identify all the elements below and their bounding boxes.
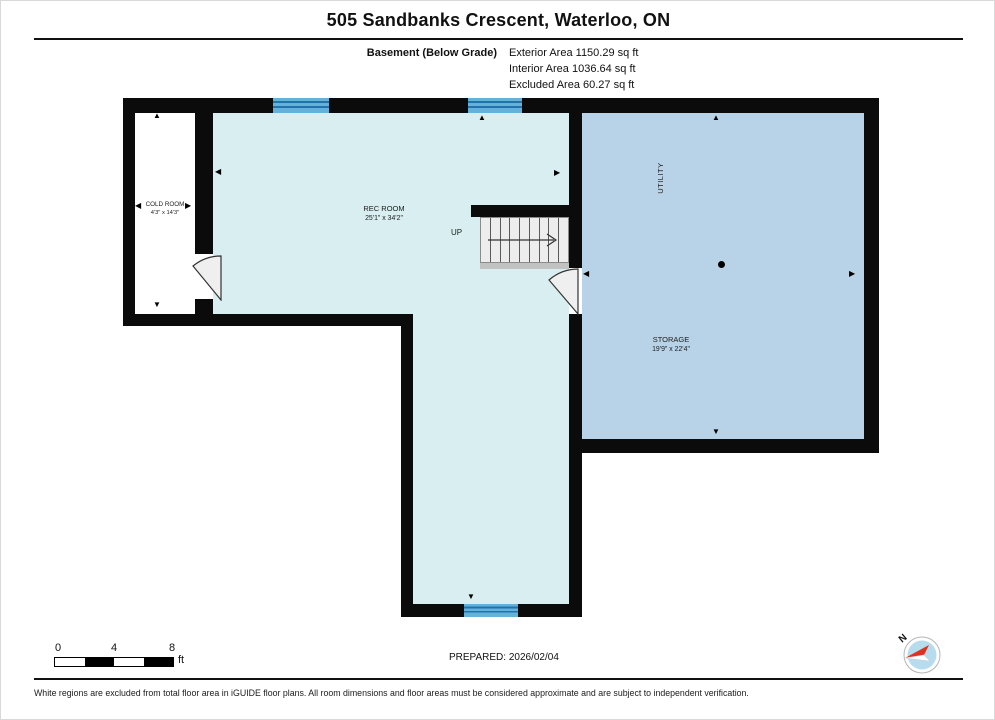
measure-arrow-right-icon: ▶: [849, 270, 855, 278]
header-divider: [34, 38, 963, 40]
scale-bar: [54, 657, 174, 667]
floor-name-label: Basement (Below Grade): [367, 47, 497, 59]
prepared-date: PREPARED: 2026/02/04: [449, 652, 559, 663]
measure-arrow-down-icon: ▼: [712, 428, 720, 436]
window-icon: [468, 98, 522, 113]
scale-tick-8: 8: [164, 642, 180, 654]
footer-divider: [34, 678, 963, 680]
scale-segment: [55, 658, 85, 666]
stairs-up-label: UP: [451, 228, 462, 237]
rec-room-leg-area: [413, 314, 569, 604]
measure-arrow-down-icon: ▼: [467, 593, 475, 601]
floor-plan-page: 505 Sandbanks Crescent, Waterloo, ON Bas…: [0, 0, 995, 720]
measure-arrow-right-icon: ▶: [185, 202, 191, 210]
wall-coldroom-divider-stub: [195, 299, 213, 314]
measure-arrow-up-icon: ▲: [478, 114, 486, 122]
measure-arrow-left-icon: ◀: [215, 168, 221, 176]
room-dimensions: 4'3" x 14'3": [137, 210, 193, 218]
camera-position-dot-icon: [718, 261, 725, 268]
scale-tick-0: 0: [50, 642, 66, 654]
wall-bottom-left: [123, 314, 413, 326]
wall-storage-divider-mid: [569, 217, 582, 268]
room-dimensions: 25'1" x 34'2": [324, 214, 444, 223]
wall-stairs-top: [471, 205, 582, 217]
interior-area-value: Interior Area 1036.64 sq ft: [509, 63, 636, 75]
wall-storage-divider-lower: [569, 314, 582, 617]
wall-coldroom-divider-upper: [195, 111, 213, 254]
wall-left: [123, 98, 135, 326]
wall-storage-bottom: [569, 439, 879, 453]
rec-room-label: REC ROOM 25'1" x 34'2": [324, 204, 444, 223]
scale-tick-4: 4: [106, 642, 122, 654]
page-title: 505 Sandbanks Crescent, Waterloo, ON: [1, 10, 995, 31]
room-name: REC ROOM: [324, 204, 444, 214]
measure-arrow-down-icon: ▼: [153, 301, 161, 309]
measure-arrow-up-icon: ▲: [712, 114, 720, 122]
window-icon: [464, 604, 518, 617]
measure-arrow-up-icon: ▲: [153, 112, 161, 120]
stairs-direction-arrow-icon: [480, 217, 569, 263]
measure-arrow-right-icon: ▶: [554, 169, 560, 177]
wall-storage-right: [864, 98, 879, 453]
room-name: STORAGE: [611, 335, 731, 345]
footer-disclaimer: White regions are excluded from total fl…: [34, 688, 974, 698]
scale-segment: [144, 658, 174, 666]
door-swing-icon: [545, 264, 581, 316]
scale-segment: [114, 658, 144, 666]
door-swing-icon: [191, 252, 225, 301]
measure-arrow-left-icon: ◀: [135, 202, 141, 210]
wall-leg-left: [401, 314, 413, 617]
scale-unit-label: ft: [178, 654, 184, 666]
storage-utility-area: [582, 113, 864, 439]
window-icon: [273, 98, 329, 113]
room-dimensions: 19'9" x 22'4": [611, 345, 731, 354]
measure-arrow-left-icon: ◀: [583, 270, 589, 278]
storage-room-label: STORAGE 19'9" x 22'4": [611, 335, 731, 354]
compass-north-label: N: [897, 632, 910, 645]
scale-segment: [85, 658, 115, 666]
wall-storage-divider-upper: [569, 111, 582, 205]
compass-north-icon: N: [896, 630, 944, 678]
utility-room-label: UTILITY: [656, 148, 666, 208]
exterior-area-value: Exterior Area 1150.29 sq ft: [509, 47, 638, 59]
excluded-area-value: Excluded Area 60.27 sq ft: [509, 79, 634, 91]
